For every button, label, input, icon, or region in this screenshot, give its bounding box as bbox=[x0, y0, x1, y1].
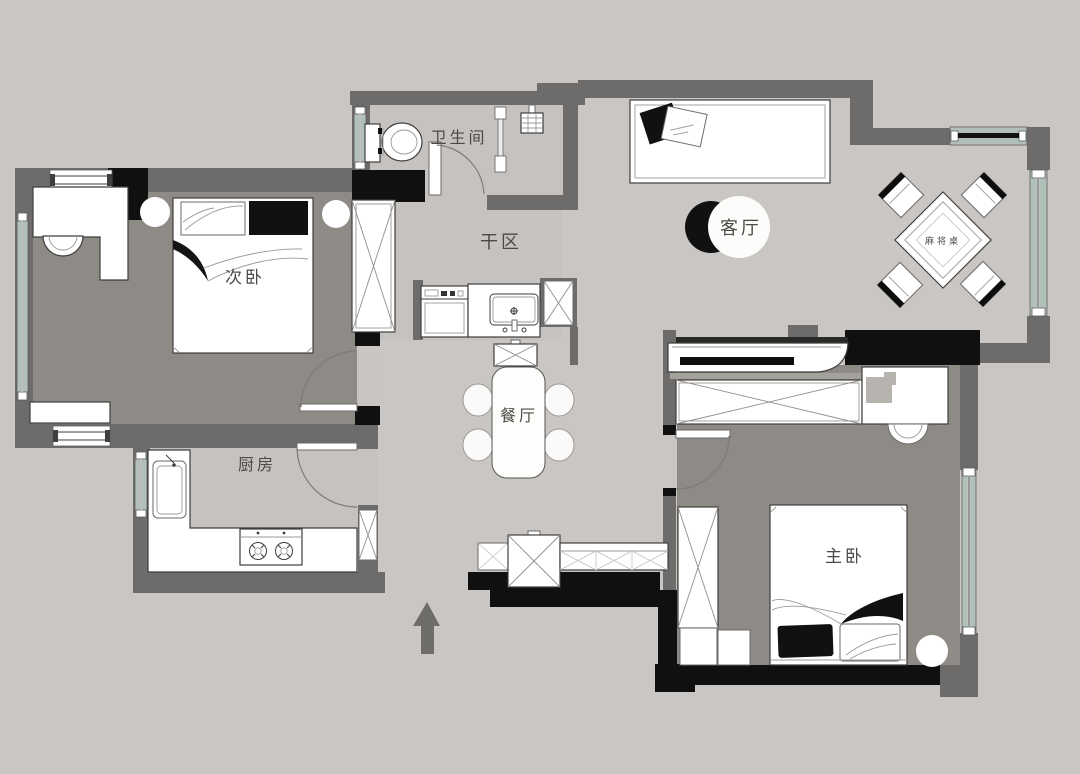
label-master-bedroom: 主卧 bbox=[825, 547, 865, 567]
pillow bbox=[181, 202, 245, 235]
label-bathroom: 卫生间 bbox=[430, 128, 487, 147]
wardrobe bbox=[676, 380, 862, 424]
bench bbox=[30, 402, 110, 423]
door-threshold bbox=[358, 447, 378, 507]
label-kitchen: 厨房 bbox=[238, 455, 276, 474]
window bbox=[962, 468, 976, 635]
chair bbox=[544, 429, 574, 461]
kitchen-sink bbox=[153, 455, 186, 518]
dry-area bbox=[421, 281, 573, 366]
north-arrow-icon bbox=[413, 602, 440, 654]
niche-cabinet bbox=[544, 281, 573, 325]
vanity-sink bbox=[468, 284, 540, 337]
toilet bbox=[365, 123, 422, 162]
entry-wall bbox=[468, 572, 660, 607]
chair bbox=[878, 172, 923, 217]
window bbox=[135, 452, 147, 517]
window bbox=[354, 107, 366, 169]
chair bbox=[463, 384, 493, 416]
bedside-table bbox=[916, 635, 948, 667]
label-living-room: 客厅 bbox=[720, 218, 762, 239]
chair bbox=[463, 429, 493, 461]
label-secondary-bedroom: 次卧 bbox=[225, 268, 265, 288]
pillow bbox=[777, 624, 833, 658]
tall-cabinet bbox=[359, 510, 377, 560]
double-bed bbox=[770, 505, 907, 665]
bedside-table bbox=[322, 200, 350, 228]
window bbox=[1030, 170, 1047, 316]
label-dining-room: 餐厅 bbox=[500, 406, 538, 425]
window bbox=[950, 127, 1027, 145]
tv bbox=[680, 357, 794, 365]
chair bbox=[961, 172, 1006, 217]
door-threshold bbox=[357, 352, 378, 408]
window bbox=[53, 426, 110, 446]
sofa bbox=[630, 100, 830, 183]
stove bbox=[240, 529, 302, 565]
pillow bbox=[840, 624, 900, 661]
label-mahjong-table: 麻将桌 bbox=[925, 235, 961, 247]
chair bbox=[960, 261, 1005, 306]
chair bbox=[544, 384, 574, 416]
label-dry-area: 干区 bbox=[480, 232, 522, 253]
floor-plan-canvas: 次卧 厨房 卫生间 干区 餐厅 客厅 主卧 麻将桌 bbox=[0, 0, 1080, 774]
window bbox=[17, 213, 28, 400]
washing-machine bbox=[421, 286, 468, 337]
chair bbox=[877, 262, 922, 307]
pillow bbox=[249, 201, 308, 235]
floor-plan-drawing: 次卧 厨房 卫生间 干区 餐厅 客厅 主卧 麻将桌 bbox=[0, 0, 1080, 774]
tv-console bbox=[668, 343, 862, 379]
low-cabinet bbox=[494, 340, 537, 366]
wardrobe bbox=[352, 200, 395, 332]
bedside-table bbox=[140, 197, 170, 227]
